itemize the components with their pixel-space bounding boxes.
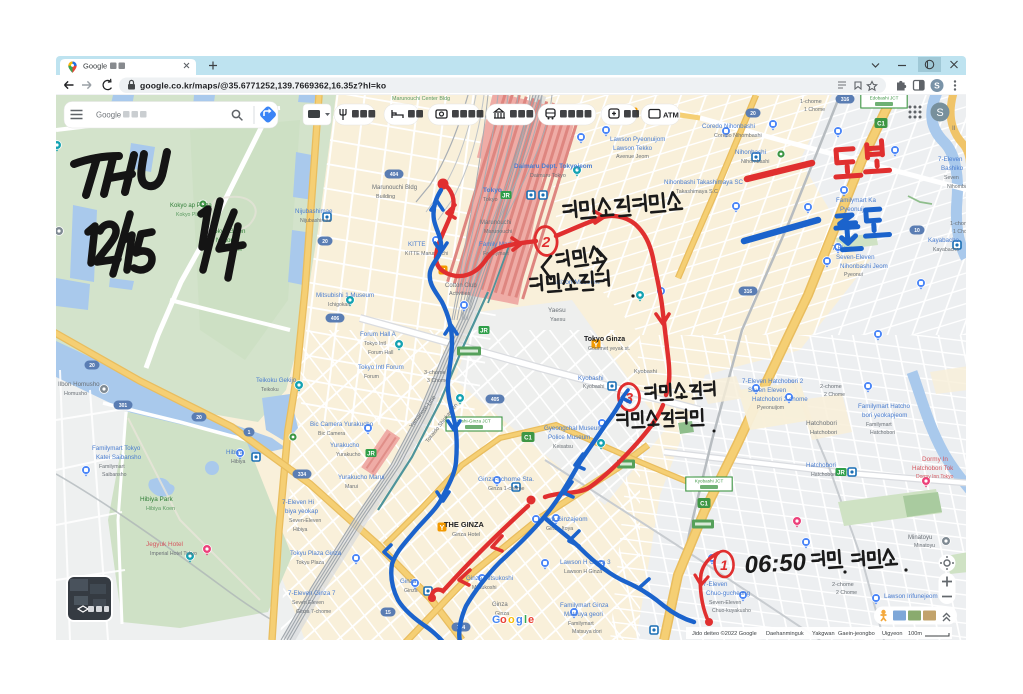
- svg-text:1: 1: [720, 557, 728, 573]
- svg-text:Hibiya: Hibiya: [231, 459, 246, 465]
- svg-text:Pyeonui: Pyeonui: [844, 272, 863, 278]
- svg-text:Nihonbashi Takashimaya SC: Nihonbashi Takashimaya SC: [664, 179, 744, 186]
- svg-text:Pyeonuijom: Pyeonuijom: [757, 405, 784, 411]
- svg-text:Jido deiteo ©2022 Google: Jido deiteo ©2022 Google: [692, 630, 757, 637]
- svg-text:Hibiya: Hibiya: [226, 449, 244, 456]
- svg-text:Bashiko: Bashiko: [941, 165, 964, 172]
- svg-text:Jegyuk Hotel: Jegyuk Hotel: [146, 541, 183, 548]
- svg-text:404: 404: [390, 172, 399, 178]
- svg-text:Forum: Forum: [364, 374, 379, 380]
- svg-text:Tokyo Intl Forum: Tokyo Intl Forum: [358, 364, 404, 371]
- svg-text:Lawson Tekko: Lawson Tekko: [613, 145, 653, 152]
- svg-text:Tokyo: Tokyo: [483, 187, 502, 194]
- svg-text:Yurakucho: Yurakucho: [330, 442, 360, 449]
- svg-text:Hatchobori: Hatchobori: [811, 472, 836, 478]
- svg-text:Tokyo Intl: Tokyo Intl: [364, 341, 386, 347]
- svg-text:2-chome: 2-chome: [820, 384, 842, 390]
- svg-text:20: 20: [322, 239, 328, 245]
- svg-text:JR: JR: [367, 452, 375, 458]
- svg-text:Edobashi JCT: Edobashi JCT: [870, 96, 899, 101]
- svg-text:7-Eleven Hi: 7-Eleven Hi: [282, 499, 314, 506]
- svg-text:S: S: [936, 107, 943, 119]
- svg-text:Hatchobori: Hatchobori: [870, 430, 895, 436]
- svg-text:C1: C1: [877, 122, 885, 128]
- svg-text:Ginza 1-chome: Ginza 1-chome: [488, 486, 525, 492]
- svg-text:Teikoku: Teikoku: [261, 387, 279, 393]
- svg-text:Katei Saibansho: Katei Saibansho: [96, 454, 142, 461]
- svg-text:Ginza-itchome Sta.: Ginza-itchome Sta.: [478, 476, 534, 483]
- svg-text:Hatchobori 2-chome: Hatchobori 2-chome: [752, 396, 808, 403]
- svg-text:o: o: [508, 614, 515, 626]
- svg-text:ATM: ATM: [663, 111, 679, 120]
- svg-text:Mitsubishi 1 Museum: Mitsubishi 1 Museum: [316, 292, 374, 299]
- svg-text:C1: C1: [700, 502, 708, 508]
- svg-text:Marunouchi: Marunouchi: [480, 220, 511, 226]
- svg-text:Ginza: Ginza: [492, 602, 508, 608]
- svg-text:Hatchobori: Hatchobori: [806, 462, 836, 469]
- svg-text:Hibiya: Hibiya: [293, 527, 308, 533]
- svg-text:Kyobashi JCT: Kyobashi JCT: [695, 479, 724, 484]
- svg-text:Seven-Eleven: Seven-Eleven: [289, 518, 321, 524]
- svg-text:1 Chome: 1 Chome: [804, 107, 825, 113]
- svg-text:Ilbon Homusho: Ilbon Homusho: [58, 381, 100, 388]
- svg-text:Marunouchi Center Bldg: Marunouchi Center Bldg: [392, 96, 450, 102]
- svg-text:7-Eleven Ginza 7: 7-Eleven Ginza 7: [288, 590, 336, 597]
- svg-text:g: g: [516, 614, 523, 626]
- svg-text:Seven: Seven: [944, 175, 959, 181]
- svg-text:Dormy In: Dormy In: [922, 456, 948, 463]
- svg-text:e: e: [528, 614, 534, 626]
- svg-text:Lawson H Ginza 3: Lawson H Ginza 3: [560, 559, 611, 566]
- svg-text:316: 316: [744, 289, 753, 295]
- svg-text:2-chome: 2-chome: [832, 582, 854, 588]
- svg-text:Seven-Eleven: Seven-Eleven: [836, 254, 875, 261]
- svg-text:Gyeongchal Museum: Gyeongchal Museum: [544, 425, 602, 432]
- svg-text:Lawson H Ginza: Lawson H Ginza: [564, 569, 602, 575]
- svg-text:Kyobashi: Kyobashi: [583, 384, 604, 390]
- svg-text:Google: Google: [96, 111, 121, 120]
- svg-text:THE GINZA: THE GINZA: [444, 520, 484, 529]
- svg-text:l: l: [524, 614, 527, 626]
- svg-text:Marunouchi Bldg: Marunouchi Bldg: [372, 185, 417, 191]
- svg-text:Tokyu Plaza: Tokyu Plaza: [296, 560, 324, 566]
- svg-text:Nihonbashi Jeom: Nihonbashi Jeom: [840, 263, 888, 270]
- svg-text:Nihombashi: Nihombashi: [741, 159, 769, 165]
- svg-text:Activities: Activities: [449, 291, 471, 297]
- svg-text:Imperial Hotel Tokyo: Imperial Hotel Tokyo: [150, 551, 197, 557]
- svg-text:Keisatsu: Keisatsu: [553, 444, 573, 450]
- svg-text:Kyobashi: Kyobashi: [578, 375, 603, 382]
- svg-text:7-Eleven: 7-Eleven: [938, 156, 963, 163]
- svg-text:Hatchobori: Hatchobori: [806, 420, 837, 427]
- svg-text:3 Chome: 3 Chome: [427, 378, 448, 384]
- svg-text:10: 10: [914, 228, 920, 234]
- svg-text:o: o: [500, 614, 507, 626]
- svg-text:Saibansho: Saibansho: [102, 472, 127, 478]
- svg-text:Familymart Hatcho: Familymart Hatcho: [858, 403, 910, 410]
- svg-text:2: 2: [541, 234, 551, 251]
- svg-text:15: 15: [385, 610, 391, 616]
- svg-text:Forum Hall: Forum Hall: [368, 350, 393, 356]
- svg-text:3-chome: 3-chome: [424, 370, 446, 376]
- svg-text:1: 1: [248, 430, 251, 436]
- svg-text:Yurakucho: Yurakucho: [336, 452, 361, 458]
- svg-text:06:50: 06:50: [744, 549, 807, 579]
- svg-text:Yaesu: Yaesu: [548, 307, 566, 314]
- svg-text:Ginza: Ginza: [404, 588, 418, 594]
- svg-text:Chuo-kuyakusho: Chuo-kuyakusho: [712, 608, 751, 614]
- svg-text:bori yeokapjeom: bori yeokapjeom: [862, 412, 907, 419]
- svg-text:JR: JR: [837, 471, 845, 477]
- svg-text:406: 406: [331, 316, 340, 322]
- svg-text:Nishi-Ginza JCT: Nishi-Ginza JCT: [457, 419, 491, 424]
- svg-text:20: 20: [196, 415, 202, 421]
- svg-text:Gourmet yeyak st.: Gourmet yeyak st.: [588, 346, 630, 352]
- svg-text:Familymart Ka: Familymart Ka: [836, 197, 876, 204]
- svg-text:Nijubashimae: Nijubashimae: [300, 218, 332, 224]
- svg-text:Nijubashimae: Nijubashimae: [295, 208, 333, 215]
- svg-text:Daimaru Tokyo: Daimaru Tokyo: [530, 173, 566, 179]
- svg-text:Marui: Marui: [345, 484, 358, 490]
- svg-text:Familymart Ginza: Familymart Ginza: [560, 602, 609, 609]
- svg-text:Tokyu Plaza Ginza: Tokyu Plaza Ginza: [290, 550, 342, 557]
- svg-text:Building: Building: [376, 194, 395, 200]
- svg-text:Kayabacho: Kayabacho: [933, 247, 959, 253]
- svg-text:Nihonbashi: Nihonbashi: [735, 149, 766, 156]
- svg-text:Ginza: Ginza: [400, 578, 417, 585]
- svg-text:Takashimaya S.C: Takashimaya S.C: [676, 189, 718, 195]
- svg-text:Familymart Tokyo: Familymart Tokyo: [92, 445, 141, 452]
- svg-text:Minatoyu: Minatoyu: [914, 543, 935, 549]
- svg-text:405: 405: [491, 397, 500, 403]
- svg-text:Kyobashi: Kyobashi: [634, 369, 657, 375]
- svg-text:Familymart: Familymart: [866, 422, 892, 428]
- svg-text:Tokyo Ginza: Tokyo Ginza: [584, 336, 625, 343]
- svg-text:biya yeokap: biya yeokap: [285, 508, 319, 515]
- svg-text:Homusho: Homusho: [64, 391, 87, 397]
- svg-text:Yakgwan: Yakgwan: [812, 631, 835, 637]
- svg-text:Chuo-gucheong: Chuo-gucheong: [706, 590, 751, 597]
- svg-text:Matsuya dori: Matsuya dori: [572, 629, 602, 635]
- svg-text:KITTE: KITTE: [408, 241, 426, 248]
- svg-text:Hatchobori: Hatchobori: [810, 430, 837, 436]
- svg-text:20: 20: [89, 363, 95, 369]
- svg-text:Minatoyu: Minatoyu: [908, 535, 932, 541]
- svg-text:Lawson Irifunejeom: Lawson Irifunejeom: [884, 593, 938, 600]
- svg-text:Yaesu: Yaesu: [550, 317, 565, 323]
- svg-text:Seven Eleven: Seven Eleven: [292, 600, 324, 606]
- svg-text:Ginza Hotel: Ginza Hotel: [452, 532, 480, 538]
- svg-text:Yurakucho Marui: Yurakucho Marui: [338, 474, 384, 481]
- svg-text:2 Chome: 2 Chome: [836, 590, 857, 596]
- svg-text:Matsuya geori: Matsuya geori: [564, 611, 603, 618]
- svg-text:S: S: [934, 81, 940, 91]
- svg-text:Marunouchi: Marunouchi: [484, 229, 512, 235]
- svg-text:Ichigokan: Ichigokan: [328, 302, 350, 308]
- svg-text:20: 20: [750, 111, 756, 117]
- svg-text:Forum Hall A: Forum Hall A: [360, 331, 397, 338]
- svg-text:Police Museum: Police Museum: [548, 434, 590, 441]
- svg-text:Daehanminguk: Daehanminguk: [766, 631, 804, 637]
- svg-text:Gaein-jeongbo: Gaein-jeongbo: [838, 631, 875, 637]
- svg-text:Seven-Eleven: Seven-Eleven: [709, 600, 741, 606]
- svg-text:Bic Camera Yurakucho: Bic Camera Yurakucho: [310, 421, 374, 428]
- svg-text:Avenue Jeom: Avenue Jeom: [616, 154, 649, 160]
- svg-text:100m: 100m: [908, 631, 922, 637]
- svg-text:Coredo Nihombashi: Coredo Nihombashi: [714, 133, 762, 139]
- svg-text:301: 301: [119, 403, 128, 409]
- svg-text:google.co.kr/maps/@35.6771252,: google.co.kr/maps/@35.6771252,139.766936…: [140, 81, 386, 91]
- svg-text:Cotton Club: Cotton Club: [445, 283, 477, 289]
- svg-text:Hatchobori Tok: Hatchobori Tok: [912, 465, 954, 472]
- svg-text:Ginza 7-chome: Ginza 7-chome: [296, 609, 331, 615]
- svg-text:Teikoku Gekijo: Teikoku Gekijo: [256, 377, 297, 384]
- svg-text:Coredo Nihonbashi: Coredo Nihonbashi: [702, 123, 755, 130]
- svg-text:Tokyo: Tokyo: [483, 197, 498, 203]
- svg-text:Il: Il: [952, 125, 955, 132]
- svg-text:2 Chome: 2 Chome: [824, 392, 845, 398]
- svg-text:Familymart: Familymart: [568, 621, 594, 627]
- svg-text:7-Eleven Hatchobori 2: 7-Eleven Hatchobori 2: [742, 378, 804, 385]
- svg-text:Hibiya Park: Hibiya Park: [140, 496, 173, 503]
- svg-text:334: 334: [298, 472, 307, 478]
- svg-text:Bic Camera: Bic Camera: [318, 431, 345, 437]
- svg-text:Kayabacho: Kayabacho: [928, 237, 960, 244]
- svg-text:Seven Eleven: Seven Eleven: [748, 387, 787, 394]
- svg-text:316: 316: [841, 97, 850, 103]
- svg-text:1-chome: 1-chome: [800, 99, 822, 105]
- svg-text:Hibiya Koen: Hibiya Koen: [146, 506, 175, 512]
- svg-text:C1: C1: [524, 436, 532, 442]
- svg-text:Familymart: Familymart: [99, 464, 125, 470]
- svg-text:JR: JR: [502, 194, 510, 200]
- svg-text:Dormy Inn Tokyo: Dormy Inn Tokyo: [916, 474, 954, 480]
- svg-text:JR: JR: [480, 329, 488, 335]
- svg-text:Daimaru Dept. Tokyojeom: Daimaru Dept. Tokyojeom: [514, 163, 593, 170]
- svg-text:7-Eleven: 7-Eleven: [703, 581, 728, 588]
- svg-text:Uigyeon: Uigyeon: [882, 631, 903, 637]
- svg-text:Google: Google: [83, 62, 107, 71]
- svg-text:Lawson Pyeonuijom: Lawson Pyeonuijom: [610, 136, 665, 143]
